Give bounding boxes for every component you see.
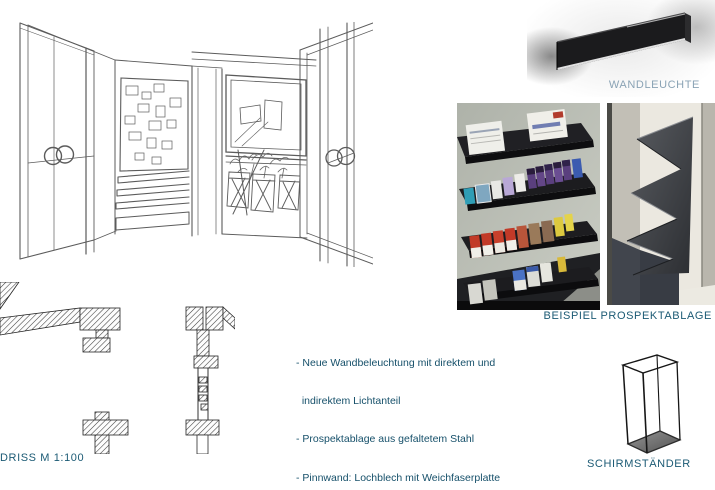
lamp-bar — [557, 13, 685, 70]
notes-list: - Neue Wandbeleuchtung mit direktem und … — [296, 331, 500, 490]
folded-steel-rack-photo — [607, 103, 715, 305]
lamp-end-face — [685, 13, 691, 43]
grundriss-label: DRISS M 1:100 — [0, 452, 84, 464]
schirmstaender-label: SCHIRMSTÄNDER — [587, 458, 691, 470]
floor-plan — [0, 282, 235, 454]
wall-lamp-photo: WANDLEUCHTE — [527, 0, 715, 97]
umbrella-stand-drawing — [610, 341, 695, 460]
beispiel-prospektablage-label: BEISPIEL PROSPEKTABLAGE — [544, 310, 712, 322]
note-line: - Prospektablage aus gefaltetem Stahl — [296, 433, 500, 446]
note-line: - Pinnwand: Lochblech mit Weichfaserplat… — [296, 472, 500, 485]
presentation-board: WANDLEUCHTE — [0, 0, 715, 490]
note-line: - Neue Wandbeleuchtung mit direktem und — [296, 357, 500, 370]
brochure-shelf-photo — [457, 103, 600, 310]
note-line: indirektem Lichtanteil — [296, 395, 500, 408]
wandleuchte-label: WANDLEUCHTE — [609, 79, 700, 91]
room-perspective-sketch — [2, 22, 373, 267]
